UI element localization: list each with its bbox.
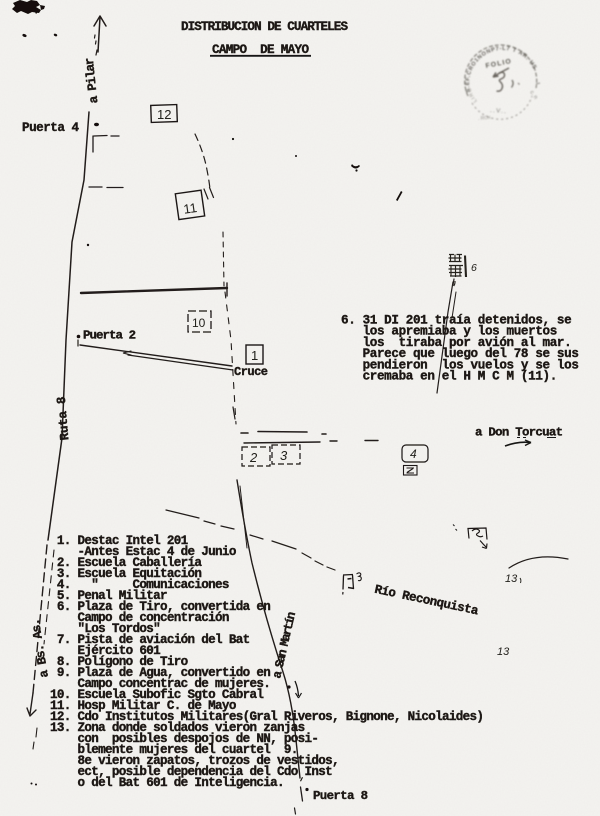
svg-text:cremaba en el H M C M (11).: cremaba en el H M C M (11). [341, 370, 557, 384]
svg-text:2: 2 [249, 450, 258, 465]
svg-text:3: 3 [280, 448, 288, 463]
svg-text:1: 1 [251, 348, 258, 363]
svg-text:13: 13 [505, 573, 518, 585]
svg-text:..V..: ..V.. [490, 108, 508, 115]
svg-text:o del Bat 601 de Inteligencia.: o del Bat 601 de Inteligencia. [50, 776, 284, 790]
svg-text:Cruce: Cruce [234, 365, 268, 379]
svg-text:Puerta 4: Puerta 4 [22, 121, 79, 135]
svg-text:13: 13 [497, 646, 510, 658]
svg-text:4: 4 [410, 447, 417, 461]
svg-text:12: 12 [157, 107, 171, 122]
svg-text:11: 11 [183, 200, 198, 217]
svg-text:DISTRIBUCION DE CUARTELES: DISTRIBUCION DE CUARTELES [181, 20, 348, 34]
svg-text:10: 10 [192, 316, 206, 330]
svg-text:6: 6 [471, 262, 477, 274]
svg-text:Puerta 8: Puerta 8 [313, 789, 368, 803]
svg-text:Puerta 2: Puerta 2 [83, 329, 136, 343]
